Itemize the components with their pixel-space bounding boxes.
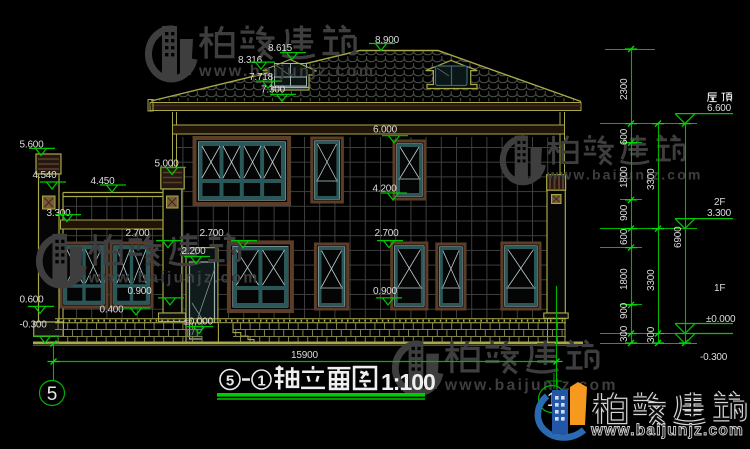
svg-text:1800: 1800 bbox=[619, 268, 630, 290]
svg-text:900: 900 bbox=[619, 302, 630, 319]
svg-text:6900: 6900 bbox=[673, 226, 684, 248]
svg-text:2.700: 2.700 bbox=[200, 228, 225, 239]
svg-text:8.316: 8.316 bbox=[238, 55, 263, 66]
svg-text:3300: 3300 bbox=[646, 269, 657, 291]
svg-text:1800: 1800 bbox=[619, 166, 630, 188]
svg-text:1F: 1F bbox=[714, 283, 725, 294]
svg-text:2.700: 2.700 bbox=[126, 228, 151, 239]
svg-text:0.400: 0.400 bbox=[100, 305, 125, 316]
svg-text:4.540: 4.540 bbox=[33, 170, 58, 181]
svg-text:0.900: 0.900 bbox=[373, 286, 398, 297]
svg-text:8.900: 8.900 bbox=[375, 35, 400, 46]
svg-text:3.300: 3.300 bbox=[47, 208, 72, 219]
svg-text:5: 5 bbox=[226, 373, 234, 390]
svg-text:-0.300: -0.300 bbox=[700, 352, 728, 363]
svg-text:5: 5 bbox=[47, 384, 58, 405]
svg-text:6.600: 6.600 bbox=[707, 103, 732, 114]
svg-text:300: 300 bbox=[619, 325, 630, 342]
svg-text:3300: 3300 bbox=[646, 168, 657, 190]
svg-text:www.baijunjz.com: www.baijunjz.com bbox=[590, 422, 744, 439]
svg-text:2300: 2300 bbox=[619, 78, 630, 100]
svg-text:300: 300 bbox=[646, 326, 657, 343]
svg-text:6.000: 6.000 bbox=[373, 125, 398, 136]
svg-text:2.700: 2.700 bbox=[375, 228, 400, 239]
svg-text:2.200: 2.200 bbox=[182, 246, 207, 257]
svg-text:15900: 15900 bbox=[291, 350, 318, 361]
svg-text:1:100: 1:100 bbox=[381, 369, 435, 395]
svg-text:3.300: 3.300 bbox=[707, 208, 732, 219]
svg-text:600: 600 bbox=[619, 228, 630, 245]
svg-text:-0.300: -0.300 bbox=[20, 320, 48, 331]
svg-text:600: 600 bbox=[619, 128, 630, 145]
svg-text:2F: 2F bbox=[714, 197, 725, 208]
svg-text:±0.000: ±0.000 bbox=[184, 317, 214, 328]
svg-text:0.900: 0.900 bbox=[128, 286, 153, 297]
svg-text:900: 900 bbox=[619, 204, 630, 221]
svg-text:1: 1 bbox=[257, 373, 265, 390]
svg-text:0.600: 0.600 bbox=[20, 295, 45, 306]
